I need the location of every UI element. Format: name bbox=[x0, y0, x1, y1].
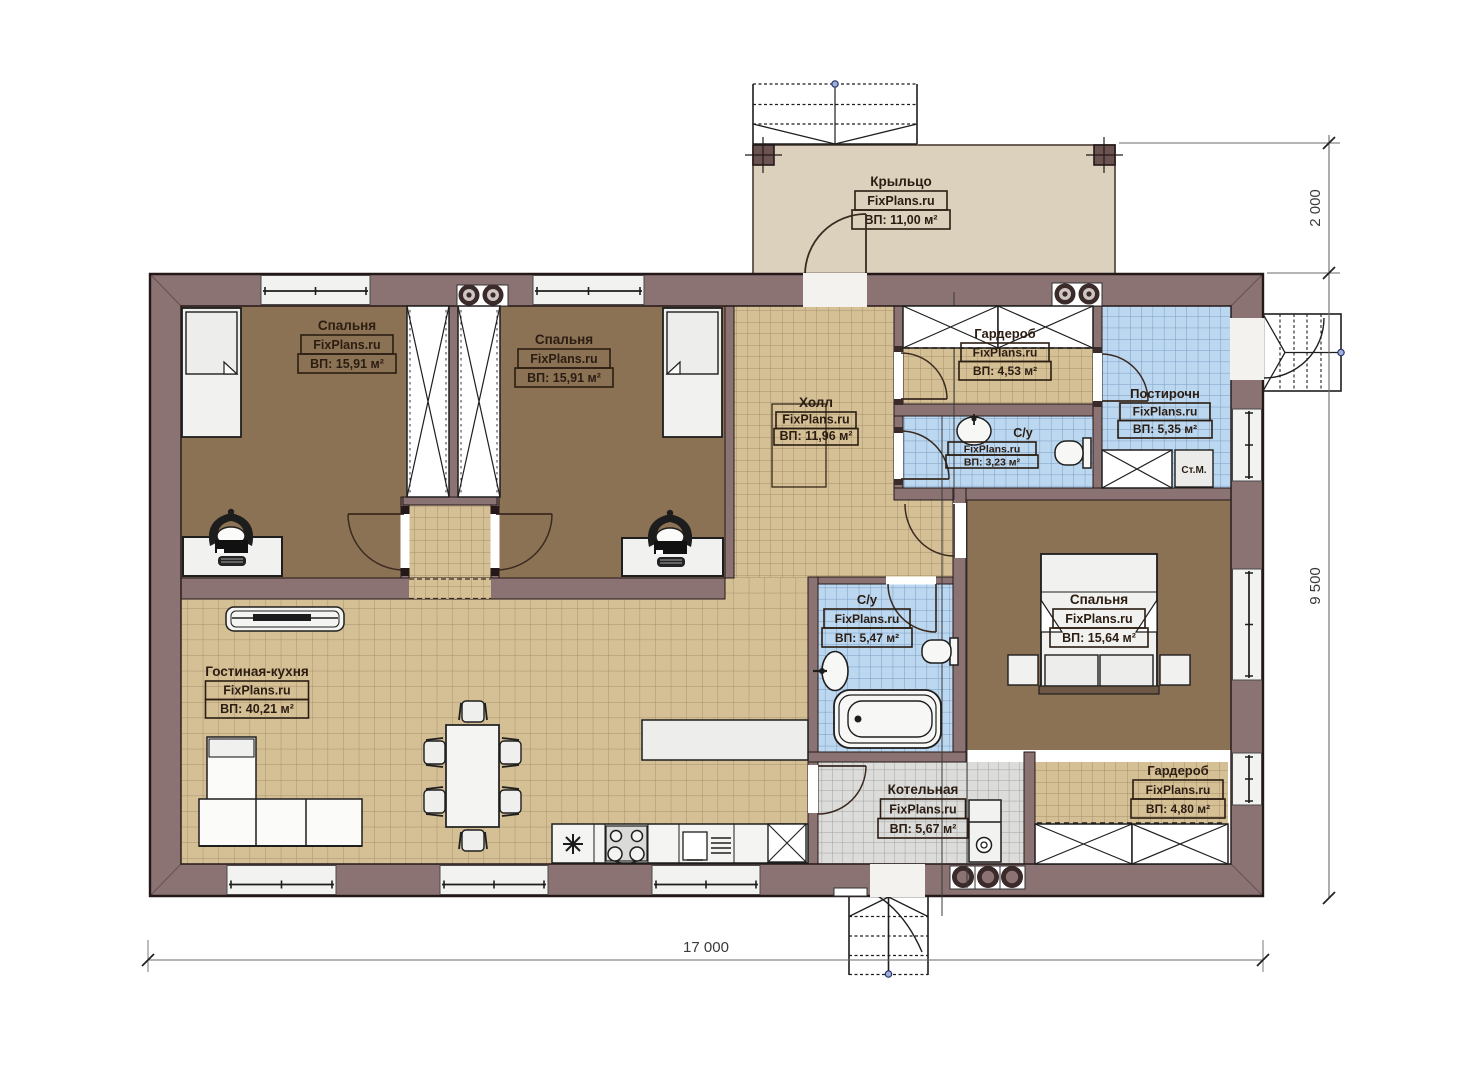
svg-text:Спальня: Спальня bbox=[318, 318, 376, 333]
svg-text:Гардероб: Гардероб bbox=[974, 326, 1035, 341]
svg-text:ВП: 5,47 м²: ВП: 5,47 м² bbox=[835, 631, 899, 645]
svg-text:ВП: 5,35 м²: ВП: 5,35 м² bbox=[1133, 422, 1197, 436]
svg-text:FixPlans.ru: FixPlans.ru bbox=[223, 684, 290, 698]
svg-text:ВП: 4,80 м²: ВП: 4,80 м² bbox=[1146, 802, 1210, 816]
svg-text:Постирочн: Постирочн bbox=[1130, 386, 1200, 401]
svg-text:9 500: 9 500 bbox=[1307, 567, 1324, 605]
svg-text:Ст.М.: Ст.М. bbox=[1181, 465, 1206, 476]
svg-text:FixPlans.ru: FixPlans.ru bbox=[1146, 783, 1211, 797]
svg-text:Котельная: Котельная bbox=[888, 782, 959, 797]
svg-text:С/у: С/у bbox=[1013, 426, 1033, 440]
svg-text:ВП: 11,00 м²: ВП: 11,00 м² bbox=[864, 213, 937, 227]
svg-text:Гостиная-кухня: Гостиная-кухня bbox=[205, 664, 308, 679]
svg-text:FixPlans.ru: FixPlans.ru bbox=[964, 444, 1021, 456]
svg-text:Крыльцо: Крыльцо bbox=[870, 174, 931, 189]
svg-text:ВП: 11,96 м²: ВП: 11,96 м² bbox=[779, 429, 852, 443]
svg-text:FixPlans.ru: FixPlans.ru bbox=[1133, 405, 1198, 419]
svg-text:FixPlans.ru: FixPlans.ru bbox=[867, 194, 934, 208]
svg-text:С/у: С/у bbox=[857, 592, 878, 607]
svg-text:FixPlans.ru: FixPlans.ru bbox=[835, 612, 900, 626]
svg-text:ВП: 15,64 м²: ВП: 15,64 м² bbox=[1062, 631, 1136, 645]
svg-text:FixPlans.ru: FixPlans.ru bbox=[530, 352, 597, 366]
svg-text:Спальня: Спальня bbox=[1070, 592, 1128, 607]
svg-text:ВП: 15,91 м²: ВП: 15,91 м² bbox=[310, 357, 384, 371]
svg-text:ВП: 4,53 м²: ВП: 4,53 м² bbox=[973, 364, 1037, 378]
svg-text:ВП: 5,67 м²: ВП: 5,67 м² bbox=[890, 822, 957, 836]
svg-text:17 000: 17 000 bbox=[683, 939, 729, 956]
svg-text:Холл: Холл bbox=[799, 395, 833, 410]
svg-text:Гардероб: Гардероб bbox=[1147, 763, 1208, 778]
svg-text:FixPlans.ru: FixPlans.ru bbox=[782, 413, 849, 427]
svg-text:2 000: 2 000 bbox=[1307, 189, 1324, 227]
svg-text:FixPlans.ru: FixPlans.ru bbox=[889, 803, 956, 817]
svg-text:FixPlans.ru: FixPlans.ru bbox=[313, 338, 380, 352]
svg-text:ВП: 15,91 м²: ВП: 15,91 м² bbox=[527, 371, 601, 385]
svg-text:ВП: 3,23 м²: ВП: 3,23 м² bbox=[964, 457, 1021, 469]
svg-text:FixPlans.ru: FixPlans.ru bbox=[973, 346, 1038, 360]
svg-text:Спальня: Спальня bbox=[535, 332, 593, 347]
svg-text:ВП: 40,21 м²: ВП: 40,21 м² bbox=[220, 702, 294, 716]
svg-text:FixPlans.ru: FixPlans.ru bbox=[1065, 612, 1132, 626]
